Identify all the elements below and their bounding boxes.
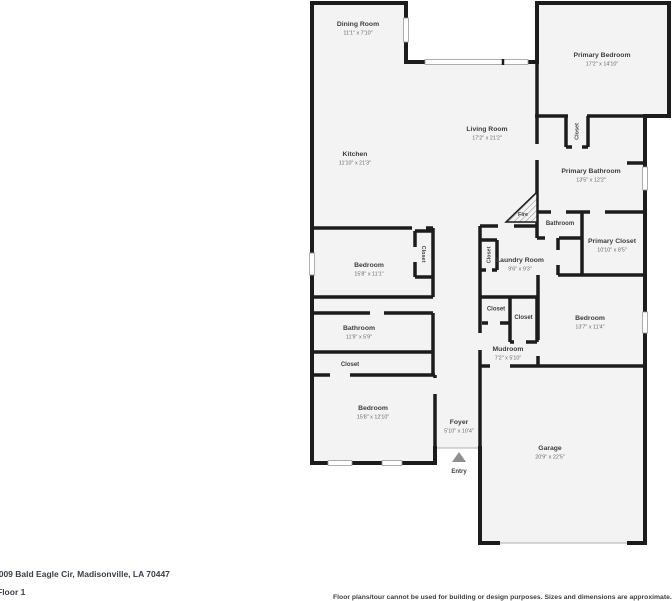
closet-label-bedroom-1: Closet — [420, 246, 426, 263]
disclaimer-text: Floor plans/tour cannot be used for buil… — [333, 594, 672, 601]
closet-label-primary-bedroom: Closet — [575, 123, 581, 140]
room-dims-dining: 11'1" x 7'10" — [343, 31, 372, 37]
room-label-bedroom-2: Bedroom — [358, 405, 388, 412]
room-label-primary-bathroom: Primary Bathroom — [561, 168, 620, 175]
closet-label-b: Closet — [514, 315, 532, 321]
room-dims-primary-bathroom: 13'5" x 12'2" — [576, 178, 606, 184]
closet-label-hall: Closet — [341, 362, 359, 368]
room-label-living-room: Living Room — [466, 126, 507, 133]
garage-door — [500, 541, 627, 546]
room-label-primary-bedroom: Primary Bedroom — [573, 52, 630, 59]
room-dims-primary-bedroom: 17'2" x 14'10" — [586, 62, 619, 68]
room-label-kitchen: Kitchen — [343, 151, 368, 158]
room-dims-garage: 20'9" x 22'5" — [535, 455, 565, 461]
room-label-laundry: Laundry Room — [496, 257, 544, 264]
room-dims-bedroom-3: 13'7" x 11'4" — [575, 325, 604, 331]
room-dims-living-room: 17'2" x 21'2" — [472, 136, 502, 142]
floor-plan: Dining Room 11'1" x 7'10" Kitchen 11'10"… — [0, 0, 672, 601]
room-dims-bedroom-1: 15'8" x 11'1" — [354, 272, 383, 278]
room-dims-primary-closet: 10'10" x 8'5" — [597, 248, 627, 254]
fireplace-label: Fire — [518, 212, 528, 218]
room-label-garage: Garage — [538, 445, 562, 452]
entry-arrow-icon — [452, 452, 466, 462]
floor-label: Floor 1 — [0, 587, 25, 597]
room-label-bedroom-3: Bedroom — [575, 315, 605, 322]
room-label-dining: Dining Room — [337, 21, 379, 28]
room-dims-foyer: 5'10" x 10'4" — [444, 429, 474, 435]
room-dims-mudroom: 7'2" x 5'10" — [495, 356, 522, 362]
listing-address: 7009 Bald Eagle Cir, Madisonville, LA 70… — [0, 569, 170, 579]
closet-label-a: Closet — [487, 307, 505, 313]
room-label-mudroom: Mudroom — [493, 346, 524, 353]
room-dims-bedroom-2: 15'8" x 12'10" — [357, 415, 390, 421]
entry-label: Entry — [451, 469, 467, 475]
room-label-bathroom-small: Bathroom — [546, 221, 574, 227]
room-label-bathroom-2: Bathroom — [343, 325, 375, 332]
room-label-bedroom-1: Bedroom — [354, 262, 384, 269]
room-dims-laundry: 9'6" x 9'3" — [508, 267, 532, 273]
room-label-foyer: Foyer — [450, 419, 469, 426]
closet-label-laundry: Closet — [487, 246, 493, 263]
room-label-primary-closet: Primary Closet — [588, 238, 637, 245]
room-dims-kitchen: 11'10" x 21'3" — [339, 161, 371, 167]
entry-threshold — [437, 446, 478, 451]
room-dims-bathroom-2: 11'9" x 5'9" — [346, 335, 372, 341]
